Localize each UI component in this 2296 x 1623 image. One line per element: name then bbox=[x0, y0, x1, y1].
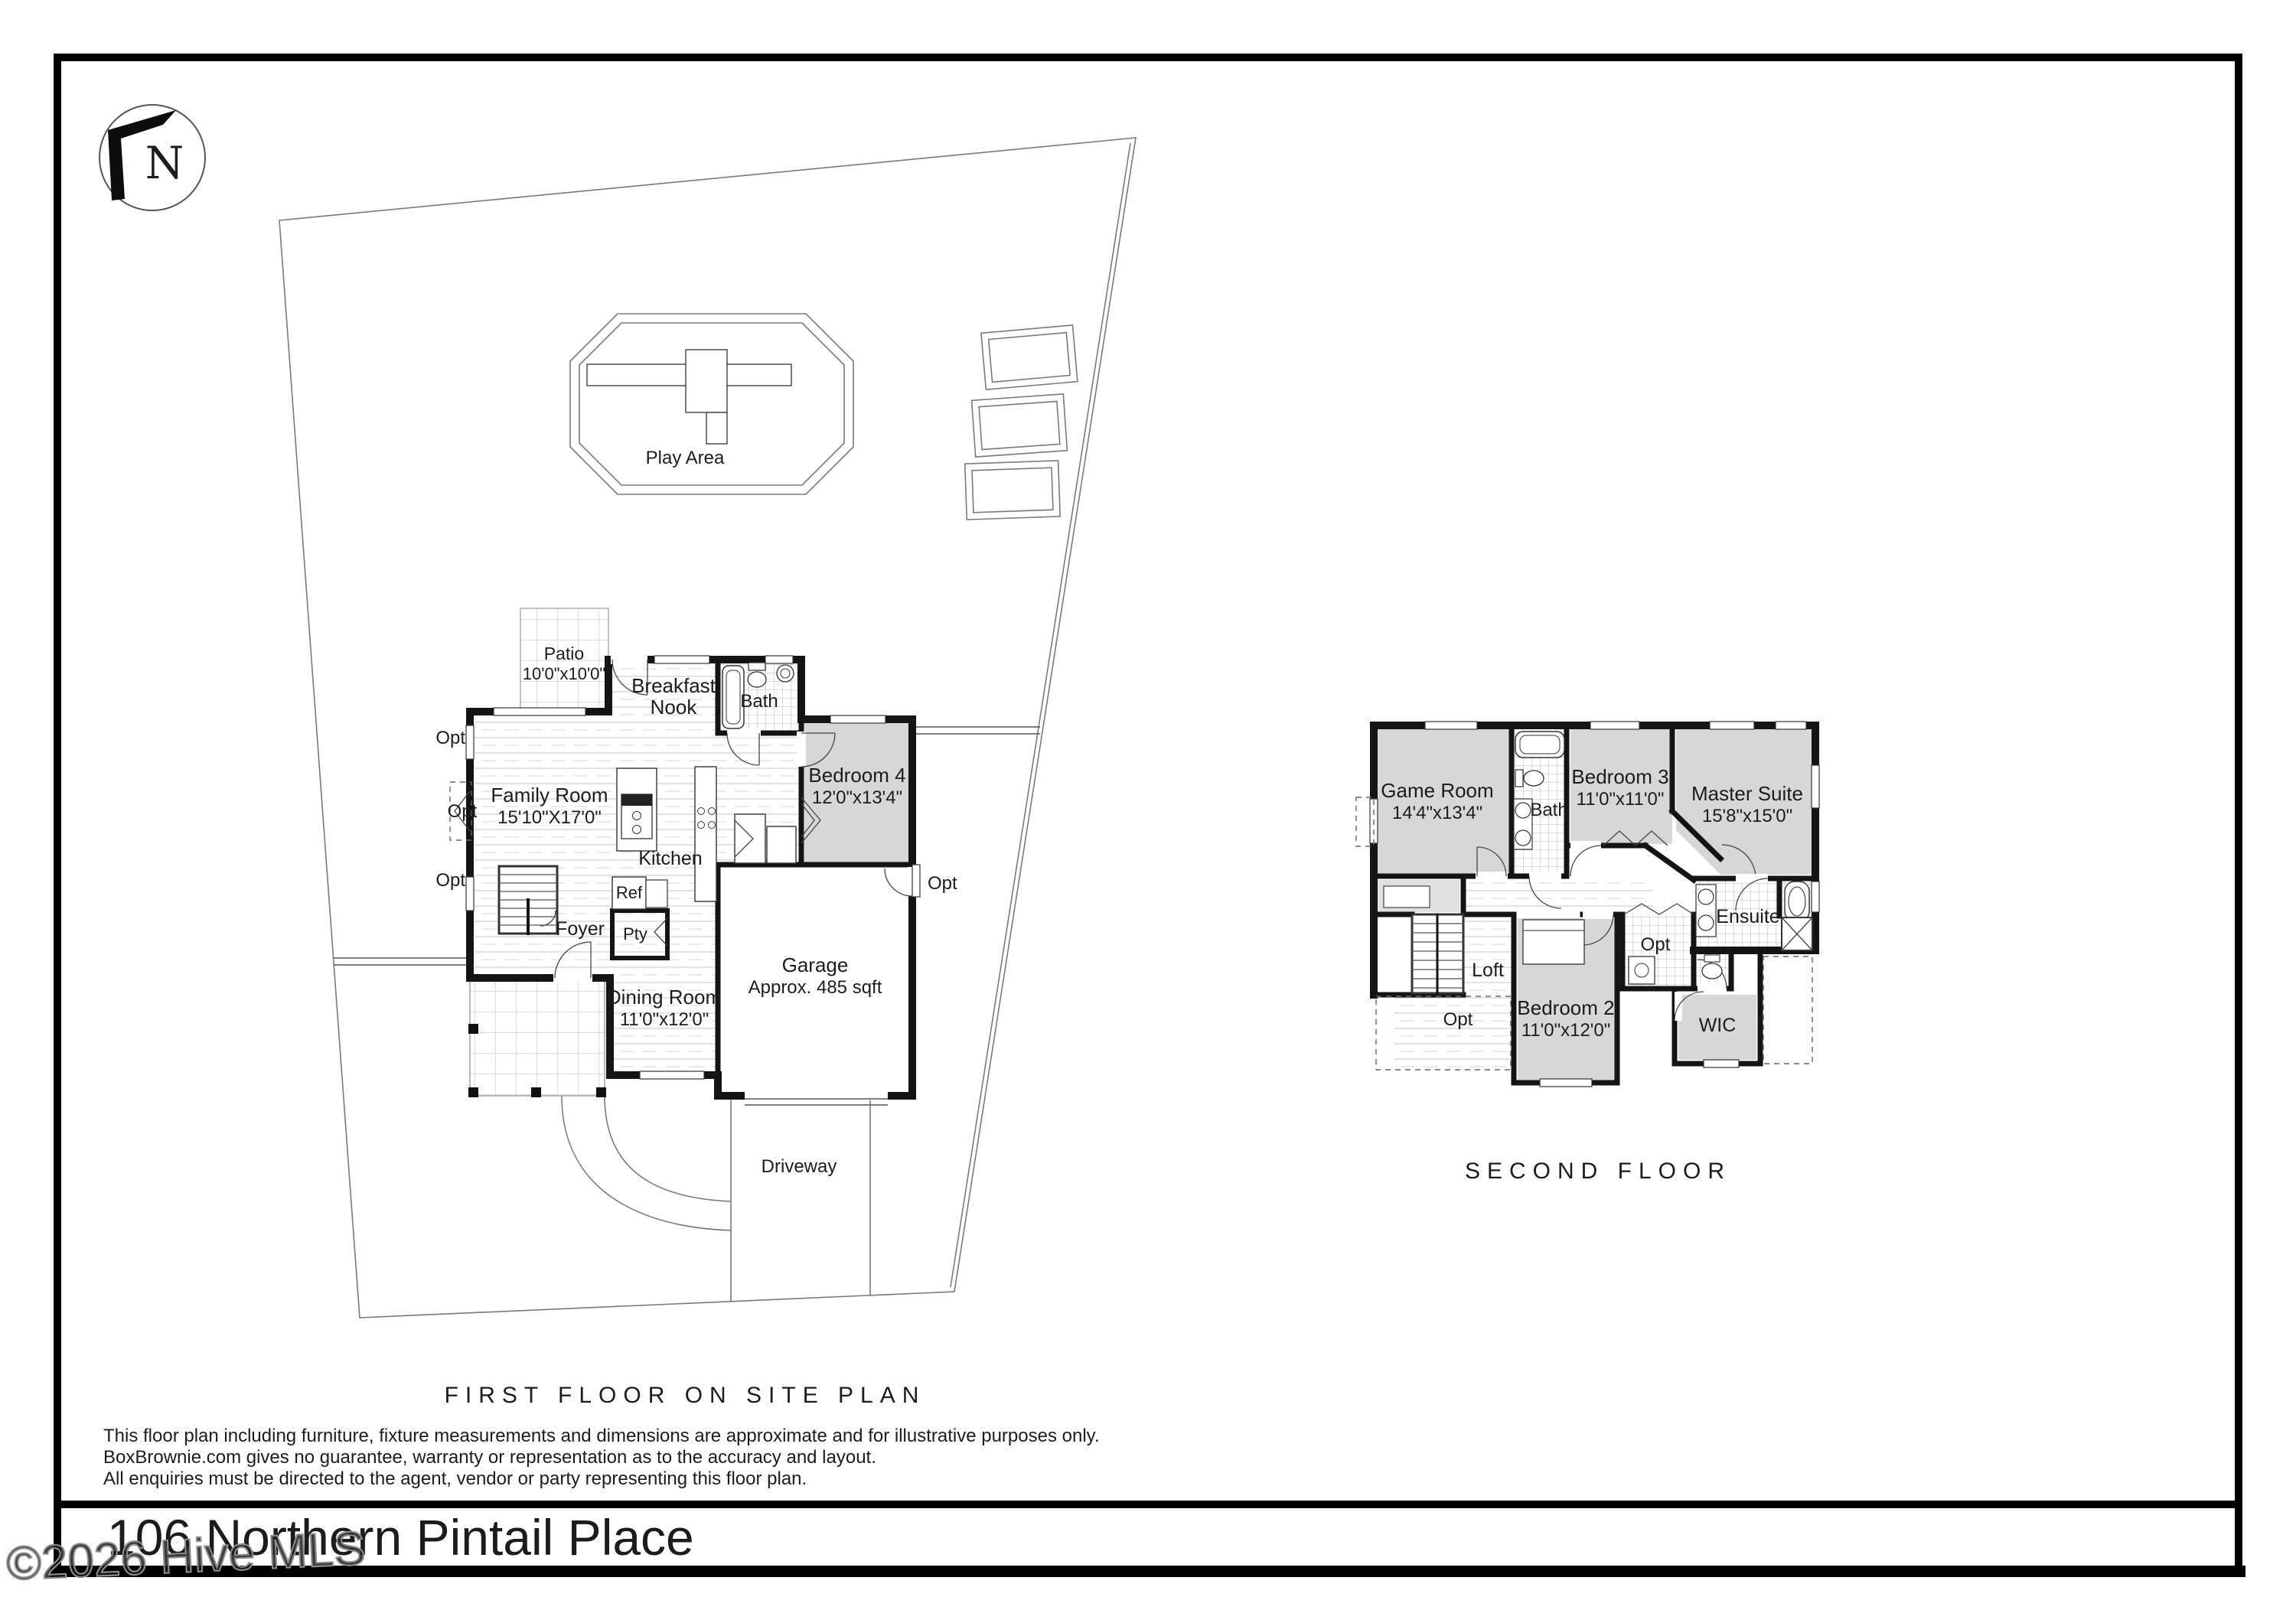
bedroom4-dims: 12'0"x13'4" bbox=[812, 787, 902, 808]
bath2-label: Bath bbox=[1530, 800, 1567, 820]
garage-dims: Approx. 485 sqft bbox=[748, 977, 882, 998]
compass-letter: N bbox=[145, 137, 184, 189]
play-equipment-tower bbox=[686, 350, 727, 412]
hall-closet bbox=[735, 814, 765, 863]
hall-floor-2f bbox=[1463, 880, 1653, 912]
master-suite-dims: 15'8"x15'0" bbox=[1702, 806, 1792, 826]
family-room-label: Family Room bbox=[491, 784, 608, 807]
patio: Patio 10'0"x10'0" bbox=[520, 608, 608, 712]
bedroom3-dims: 11'0"x11'0" bbox=[1577, 789, 1665, 810]
wic-label: WIC bbox=[1699, 1015, 1737, 1036]
bath-label: Bath bbox=[740, 691, 778, 712]
dining-room-dims: 11'0"x12'0" bbox=[620, 1009, 709, 1030]
border-bottom-bar bbox=[51, 1566, 2245, 1577]
patio-label: Patio bbox=[544, 644, 584, 663]
disclaimer-line1: This floor plan including furniture, fix… bbox=[103, 1426, 1100, 1446]
loft-label: Loft bbox=[1472, 960, 1504, 981]
disclaimer-line2: BoxBrownie.com gives no guarantee, warra… bbox=[103, 1447, 876, 1468]
disclaimer-line3: All enquiries must be directed to the ag… bbox=[103, 1468, 807, 1489]
opt-label-1: Opt bbox=[435, 728, 465, 748]
bedroom2-label: Bedroom 2 bbox=[1517, 996, 1614, 1019]
floor-plan-drawing: N Play Area Driveway bbox=[0, 0, 2296, 1623]
pty-label: Pty bbox=[623, 924, 647, 943]
dining-room-label: Dining Room bbox=[607, 986, 722, 1009]
second-floor-plan: Game Room 14'4"x13'4" Bath Bedroom 3 11'… bbox=[1356, 722, 1819, 1087]
second-floor-caption: SECOND FLOOR bbox=[1465, 1159, 1731, 1184]
play-equipment-slide bbox=[706, 412, 727, 444]
master-suite-label: Master Suite bbox=[1691, 782, 1803, 805]
ref-label: Ref bbox=[616, 883, 643, 902]
foyer-label: Foyer bbox=[556, 918, 605, 940]
opt-label-2: Opt bbox=[448, 801, 478, 822]
kitchen-label: Kitchen bbox=[638, 848, 702, 869]
opt-label-garage: Opt bbox=[928, 873, 957, 894]
patio-dims: 10'0"x10'0" bbox=[523, 664, 605, 683]
opt-label-3: Opt bbox=[435, 870, 465, 891]
bedroom3-label: Bedroom 3 bbox=[1571, 765, 1668, 788]
first-floor-stairs bbox=[499, 866, 557, 934]
play-area-label: Play Area bbox=[646, 448, 725, 468]
wc-toilet bbox=[1702, 963, 1722, 979]
game-room-label: Game Room bbox=[1381, 779, 1493, 802]
bedroom2-dims: 11'0"x12'0" bbox=[1521, 1020, 1611, 1041]
driveway-label: Driveway bbox=[762, 1156, 837, 1177]
floor-plan-sheet: N Play Area Driveway bbox=[0, 0, 2296, 1623]
garage-label: Garage bbox=[782, 953, 849, 976]
game-room-dims: 14'4"x13'4" bbox=[1392, 803, 1482, 823]
porch bbox=[468, 978, 606, 1097]
game-room-fill bbox=[1378, 729, 1512, 875]
family-room-dims: 15'10"X17'0" bbox=[497, 807, 602, 828]
second-floor-stairs bbox=[1412, 914, 1463, 993]
breakfast-nook-label: Breakfast bbox=[631, 674, 716, 697]
opt-label-loft: Opt bbox=[1443, 1009, 1473, 1030]
breakfast-nook-label2: Nook bbox=[651, 696, 698, 719]
page-background bbox=[0, 0, 2296, 1623]
bedroom2-bed bbox=[1523, 920, 1584, 964]
opt-label-laundry: Opt bbox=[1641, 934, 1671, 955]
bedroom4-label: Bedroom 4 bbox=[808, 764, 905, 787]
ensuite-label: Ensuite bbox=[1716, 906, 1779, 927]
first-floor-caption: FIRST FLOOR ON SITE PLAN bbox=[445, 1383, 926, 1408]
